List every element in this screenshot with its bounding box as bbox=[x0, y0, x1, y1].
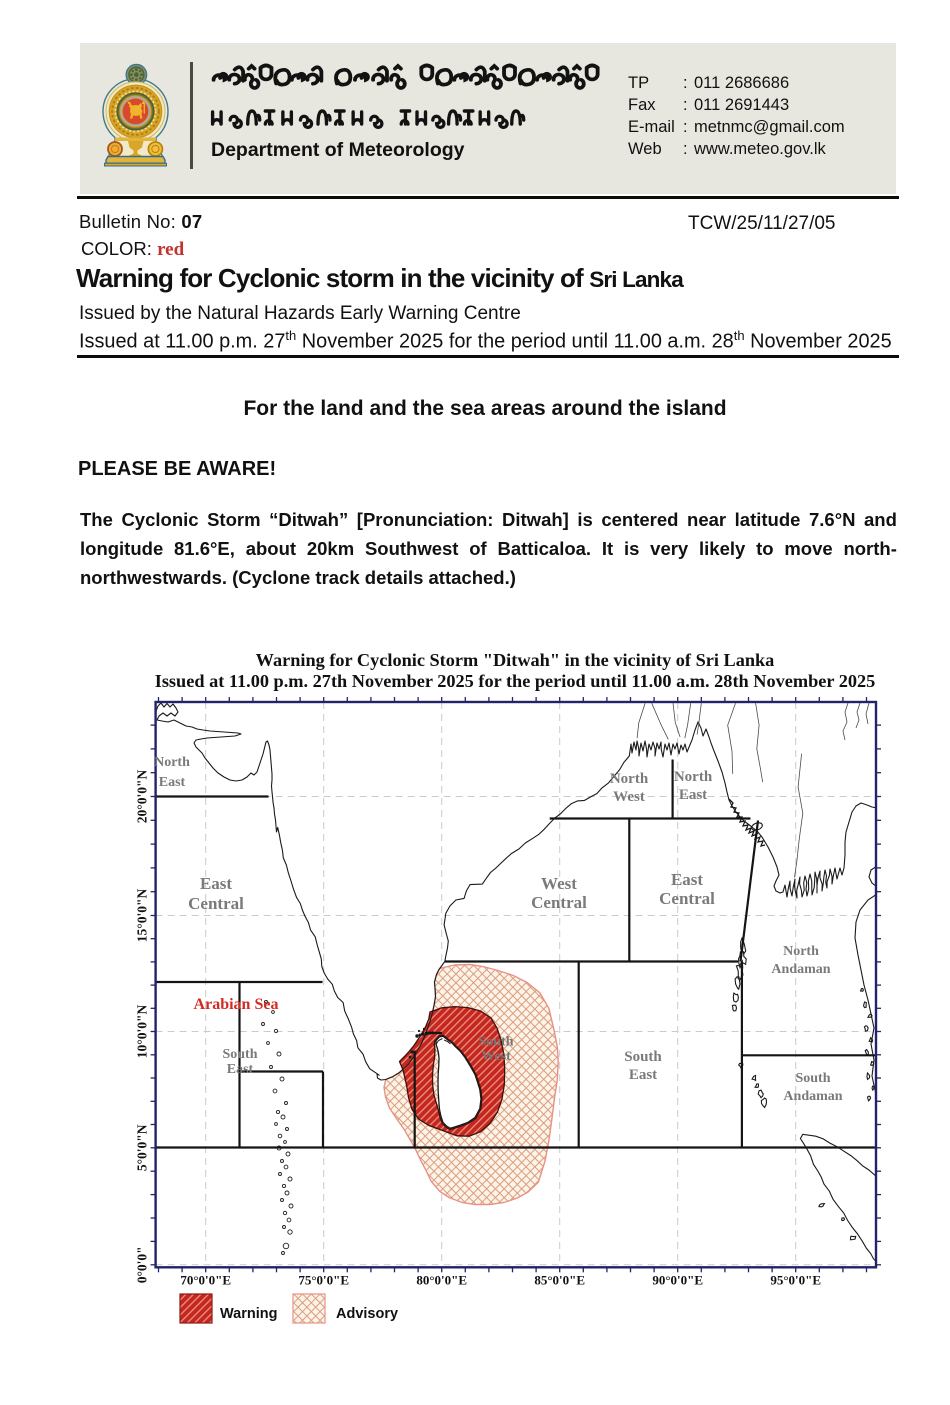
svg-text:South: South bbox=[795, 1071, 830, 1086]
svg-text:East: East bbox=[629, 1067, 657, 1083]
svg-text:80°0'0"E: 80°0'0"E bbox=[416, 1273, 467, 1288]
svg-text:Central: Central bbox=[188, 894, 244, 913]
svg-text:0°0'0": 0°0'0" bbox=[135, 1246, 150, 1283]
svg-text:East: East bbox=[200, 874, 232, 893]
svg-text:90°0'0"E: 90°0'0"E bbox=[652, 1273, 703, 1288]
svg-text:Andaman: Andaman bbox=[771, 962, 830, 977]
svg-text:Issued at 11.00 p.m. 27th Nove: Issued at 11.00 p.m. 27th November 2025 … bbox=[155, 671, 876, 691]
svg-text:North: North bbox=[154, 755, 190, 770]
svg-text:5°0'0"N: 5°0'0"N bbox=[135, 1124, 150, 1171]
svg-text:North: North bbox=[610, 771, 649, 787]
svg-text:Warning: Warning bbox=[220, 1306, 277, 1322]
svg-text:85°0'0"E: 85°0'0"E bbox=[534, 1273, 585, 1288]
svg-text:75°0'0"E: 75°0'0"E bbox=[298, 1273, 349, 1288]
svg-text:10°0'0"N: 10°0'0"N bbox=[135, 1005, 150, 1059]
svg-text:Advisory: Advisory bbox=[336, 1306, 398, 1322]
svg-text:East: East bbox=[679, 787, 707, 803]
svg-text:West: West bbox=[613, 789, 645, 805]
svg-text:Andaman: Andaman bbox=[783, 1089, 842, 1104]
svg-text:North: North bbox=[674, 769, 713, 785]
svg-text:Warning for Cyclonic Storm "Di: Warning for Cyclonic Storm "Ditwah" in t… bbox=[256, 650, 775, 670]
svg-text:South: South bbox=[478, 1035, 513, 1050]
svg-text:15°0'0"N: 15°0'0"N bbox=[135, 889, 150, 943]
svg-text:Central: Central bbox=[531, 893, 587, 912]
svg-text:West: West bbox=[541, 874, 577, 893]
svg-text:East: East bbox=[227, 1062, 254, 1077]
svg-text:20°0'0"N: 20°0'0"N bbox=[135, 770, 150, 824]
svg-text:West: West bbox=[481, 1049, 511, 1064]
svg-text:95°0'0"E: 95°0'0"E bbox=[770, 1273, 821, 1288]
svg-text:North: North bbox=[783, 944, 819, 959]
svg-text:East: East bbox=[159, 775, 186, 790]
svg-text:South: South bbox=[624, 1049, 662, 1065]
svg-text:70°0'0"E: 70°0'0"E bbox=[180, 1273, 231, 1288]
svg-text:Central: Central bbox=[659, 889, 715, 908]
svg-text:Arabian Sea: Arabian Sea bbox=[194, 996, 279, 1013]
svg-text:East: East bbox=[671, 870, 703, 889]
svg-text:South: South bbox=[222, 1047, 257, 1062]
